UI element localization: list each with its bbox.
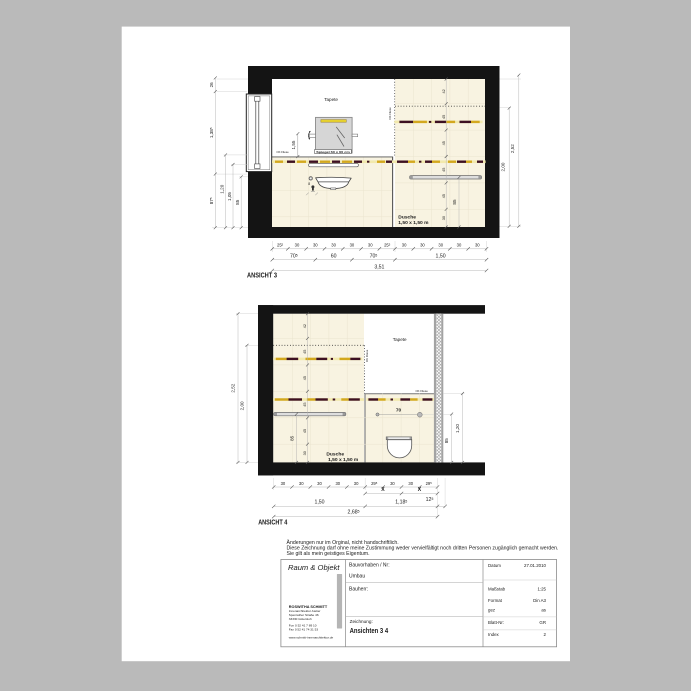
svg-text:ANSICHT 4: ANSICHT 4	[258, 518, 287, 526]
svg-text:Bauvorhaben / Nr:: Bauvorhaben / Nr:	[349, 563, 390, 569]
svg-text:2,00: 2,00	[501, 162, 506, 171]
svg-text:45: 45	[303, 376, 307, 380]
svg-text:45: 45	[442, 194, 446, 198]
svg-text:www.schmitt-innenarchitektur.d: www.schmitt-innenarchitektur.de	[289, 636, 334, 640]
svg-text:42: 42	[442, 89, 446, 93]
svg-text:30: 30	[475, 242, 480, 247]
svg-text:Dusche: Dusche	[326, 451, 344, 457]
svg-text:1,55: 1,55	[291, 140, 296, 149]
svg-text:30: 30	[317, 481, 322, 486]
svg-text:85: 85	[290, 435, 295, 441]
svg-text:8: 8	[308, 182, 310, 186]
svg-text:Ansichten 3 4: Ansichten 3 4	[350, 628, 389, 635]
svg-text:85: 85	[235, 199, 240, 205]
svg-text:33330 Gütersloh: 33330 Gütersloh	[289, 617, 312, 621]
svg-text:30: 30	[390, 481, 395, 486]
svg-text:ANSICHT 3: ANSICHT 3	[247, 271, 277, 279]
svg-text:85: 85	[444, 438, 449, 444]
svg-text:Tapete: Tapete	[324, 97, 338, 102]
svg-text:45: 45	[442, 168, 446, 172]
svg-text:45: 45	[442, 115, 446, 119]
svg-text:30: 30	[354, 481, 359, 486]
svg-text:30: 30	[335, 481, 340, 486]
svg-text:26: 26	[209, 82, 214, 88]
svg-text:Bauherr:: Bauherr:	[349, 587, 368, 593]
svg-text:Blatt-Nr:: Blatt-Nr:	[488, 620, 504, 625]
svg-text:X: X	[381, 487, 385, 493]
svg-text:70: 70	[396, 408, 402, 414]
svg-text:OK Fliese: OK Fliese	[388, 107, 392, 120]
svg-text:Spiegel 60 x 60 cm: Spiegel 60 x 60 cm	[316, 150, 350, 154]
svg-text:45: 45	[303, 350, 307, 354]
svg-text:30: 30	[408, 481, 413, 486]
svg-text:Dusche: Dusche	[398, 214, 416, 220]
svg-text:1,50: 1,50	[436, 253, 446, 259]
svg-text:30: 30	[295, 242, 300, 247]
svg-text:Raum & Objekt: Raum & Objekt	[288, 563, 340, 572]
svg-text:1,05: 1,05	[227, 192, 232, 201]
svg-text:X: X	[418, 487, 422, 493]
svg-text:Fax 0 52 41 74 31 53: Fax 0 52 41 74 31 53	[289, 627, 319, 631]
svg-text:Tapete: Tapete	[393, 337, 407, 342]
svg-text:45: 45	[442, 141, 446, 145]
svg-text:2,52: 2,52	[510, 144, 515, 153]
svg-text:Sie gilt als mein geistiges Ei: Sie gilt als mein geistiges Eigentum.	[287, 551, 370, 557]
svg-text:30: 30	[303, 451, 307, 455]
svg-text:1,20: 1,20	[219, 184, 224, 193]
svg-text:30: 30	[442, 216, 446, 220]
svg-text:OK Fliese: OK Fliese	[416, 389, 429, 393]
svg-text:Index: Index	[488, 632, 500, 637]
svg-text:gez: gez	[488, 608, 495, 613]
svg-text:GR: GR	[539, 620, 546, 625]
svg-text:30: 30	[313, 242, 318, 247]
svg-text:3,51: 3,51	[374, 264, 384, 270]
svg-text:30: 30	[457, 242, 462, 247]
svg-text:27.01.2010: 27.01.2010	[524, 563, 547, 568]
svg-text:Umbau: Umbau	[349, 573, 365, 579]
svg-text:Din A3: Din A3	[533, 598, 546, 603]
svg-text:1,50 x 1,50 m: 1,50 x 1,50 m	[328, 457, 359, 463]
svg-text:45: 45	[303, 429, 307, 433]
svg-text:Zeichnung:: Zeichnung:	[350, 619, 373, 624]
svg-text:85: 85	[452, 199, 457, 205]
svg-text:Format: Format	[488, 598, 503, 603]
svg-text:30: 30	[350, 242, 355, 247]
svg-text:30: 30	[281, 481, 286, 486]
svg-text:30: 30	[402, 242, 407, 247]
svg-text:30: 30	[299, 481, 304, 486]
svg-text:1:25: 1:25	[537, 586, 546, 591]
svg-text:30: 30	[331, 242, 336, 247]
svg-text:30: 30	[438, 242, 443, 247]
svg-text:Datum: Datum	[488, 563, 501, 568]
svg-text:1,50: 1,50	[314, 500, 324, 506]
svg-text:1,20: 1,20	[455, 424, 460, 433]
svg-text:Maßstab: Maßstab	[488, 586, 506, 591]
svg-text:OK Fliese: OK Fliese	[365, 349, 369, 362]
svg-text:1,50 x 1,50 m: 1,50 x 1,50 m	[398, 220, 429, 226]
svg-text:30: 30	[420, 242, 425, 247]
svg-text:45: 45	[303, 402, 307, 406]
svg-text:as: as	[541, 608, 546, 613]
svg-text:2,52: 2,52	[231, 383, 236, 392]
svg-text:OK Fliese: OK Fliese	[276, 150, 289, 154]
svg-text:2,00: 2,00	[240, 401, 245, 410]
svg-text:30: 30	[368, 242, 373, 247]
svg-text:42: 42	[303, 324, 307, 328]
svg-text:60: 60	[331, 253, 337, 259]
